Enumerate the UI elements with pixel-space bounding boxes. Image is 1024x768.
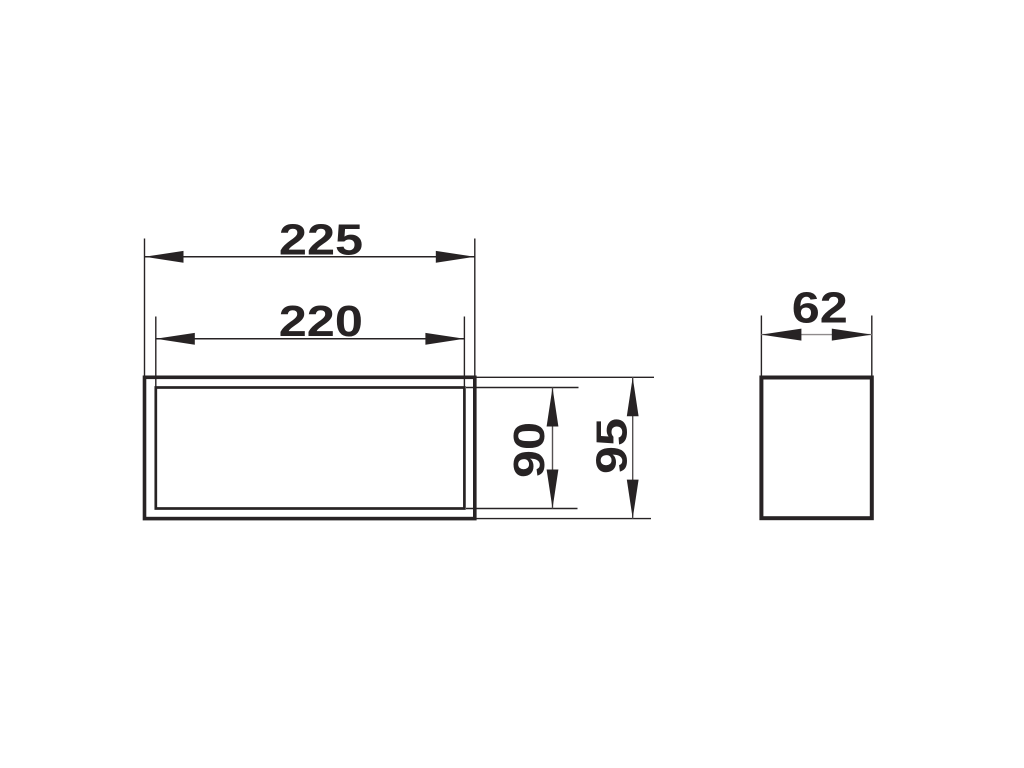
svg-text:220: 220 xyxy=(279,296,363,345)
svg-text:225: 225 xyxy=(279,215,363,264)
svg-text:95: 95 xyxy=(587,418,636,474)
svg-text:90: 90 xyxy=(504,422,553,478)
svg-text:62: 62 xyxy=(792,283,848,332)
